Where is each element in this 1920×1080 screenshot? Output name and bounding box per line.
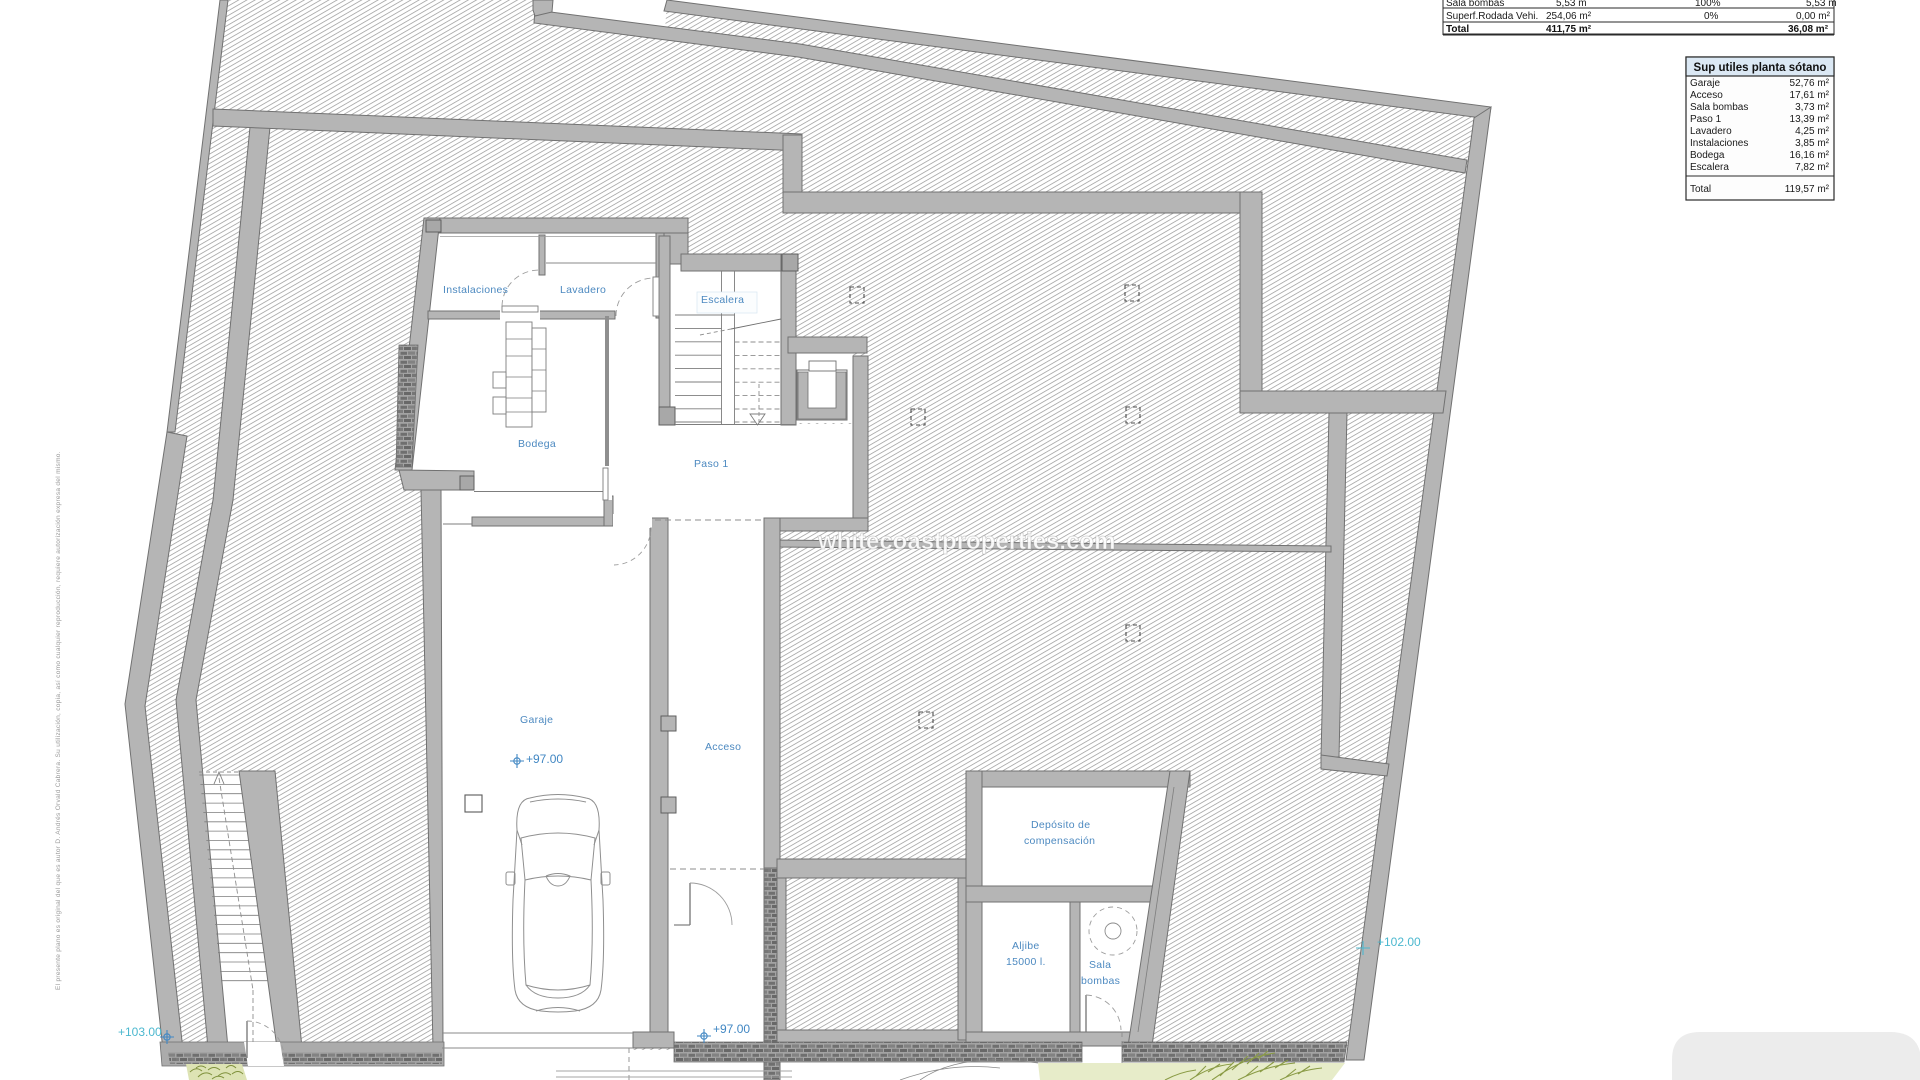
svg-text:whitecoastproperties.com: whitecoastproperties.com: [817, 528, 1115, 555]
svg-text:16,16 m²: 16,16 m²: [1790, 150, 1830, 161]
svg-text:Bodega: Bodega: [1690, 150, 1725, 161]
svg-text:+102.00: +102.00: [1377, 935, 1421, 949]
svg-text:5,53 m: 5,53 m: [1556, 0, 1587, 9]
svg-text:bombas: bombas: [1081, 975, 1120, 987]
svg-text:Lavadero: Lavadero: [1690, 126, 1732, 137]
svg-text:0,00 m²: 0,00 m²: [1796, 11, 1831, 22]
svg-text:Lavadero: Lavadero: [560, 284, 606, 296]
svg-text:Paso 1: Paso 1: [1690, 114, 1722, 125]
svg-text:Escalera: Escalera: [1690, 162, 1729, 173]
svg-text:Total: Total: [1690, 184, 1711, 195]
svg-text:3,73 m²: 3,73 m²: [1795, 102, 1830, 113]
svg-text:compensación: compensación: [1024, 835, 1095, 847]
svg-text:Sala: Sala: [1089, 959, 1111, 971]
svg-text:119,57 m²: 119,57 m²: [1785, 184, 1830, 195]
svg-text:Superf.Rodada Vehi.: Superf.Rodada Vehi.: [1446, 11, 1538, 22]
svg-text:411,75 m²: 411,75 m²: [1546, 24, 1592, 35]
svg-text:36,08 m²: 36,08 m²: [1788, 24, 1829, 35]
svg-text:+97.00: +97.00: [526, 752, 563, 766]
svg-text:3,85 m²: 3,85 m²: [1795, 138, 1830, 149]
svg-text:52,76 m²: 52,76 m²: [1790, 78, 1830, 89]
svg-text:El presente plano es original: El presente plano es original del que es…: [55, 451, 62, 990]
svg-text:Instalaciones: Instalaciones: [443, 284, 508, 296]
svg-text:+103.00: +103.00: [118, 1025, 162, 1039]
svg-text:Aljibe: Aljibe: [1012, 940, 1039, 952]
svg-text:Bodega: Bodega: [518, 438, 556, 450]
svg-text:+97.00: +97.00: [713, 1022, 750, 1036]
svg-text:Sala bombas: Sala bombas: [1690, 102, 1748, 113]
svg-text:Paso 1: Paso 1: [694, 458, 729, 470]
svg-text:Instalaciones: Instalaciones: [1690, 138, 1748, 149]
svg-text:254,06 m²: 254,06 m²: [1546, 11, 1592, 22]
svg-text:5,53 m: 5,53 m: [1806, 0, 1837, 9]
svg-text:Escalera: Escalera: [701, 294, 744, 306]
svg-text:15000 l.: 15000 l.: [1006, 956, 1046, 968]
svg-text:13,39 m²: 13,39 m²: [1790, 114, 1830, 125]
svg-text:0%: 0%: [1704, 11, 1719, 22]
svg-text:4,25 m²: 4,25 m²: [1795, 126, 1830, 137]
svg-text:7,82 m²: 7,82 m²: [1795, 162, 1830, 173]
svg-text:Sala bombas: Sala bombas: [1446, 0, 1504, 9]
svg-text:Depósito de: Depósito de: [1031, 819, 1090, 831]
svg-text:Acceso: Acceso: [705, 741, 741, 753]
svg-text:Total: Total: [1446, 24, 1469, 35]
svg-text:Garaje: Garaje: [1690, 78, 1720, 89]
svg-text:17,61 m²: 17,61 m²: [1790, 90, 1830, 101]
svg-text:100%: 100%: [1695, 0, 1721, 9]
svg-text:Acceso: Acceso: [1690, 90, 1723, 101]
svg-text:Garaje: Garaje: [520, 714, 553, 726]
svg-text:Sup utiles planta sótano: Sup utiles planta sótano: [1694, 62, 1827, 74]
